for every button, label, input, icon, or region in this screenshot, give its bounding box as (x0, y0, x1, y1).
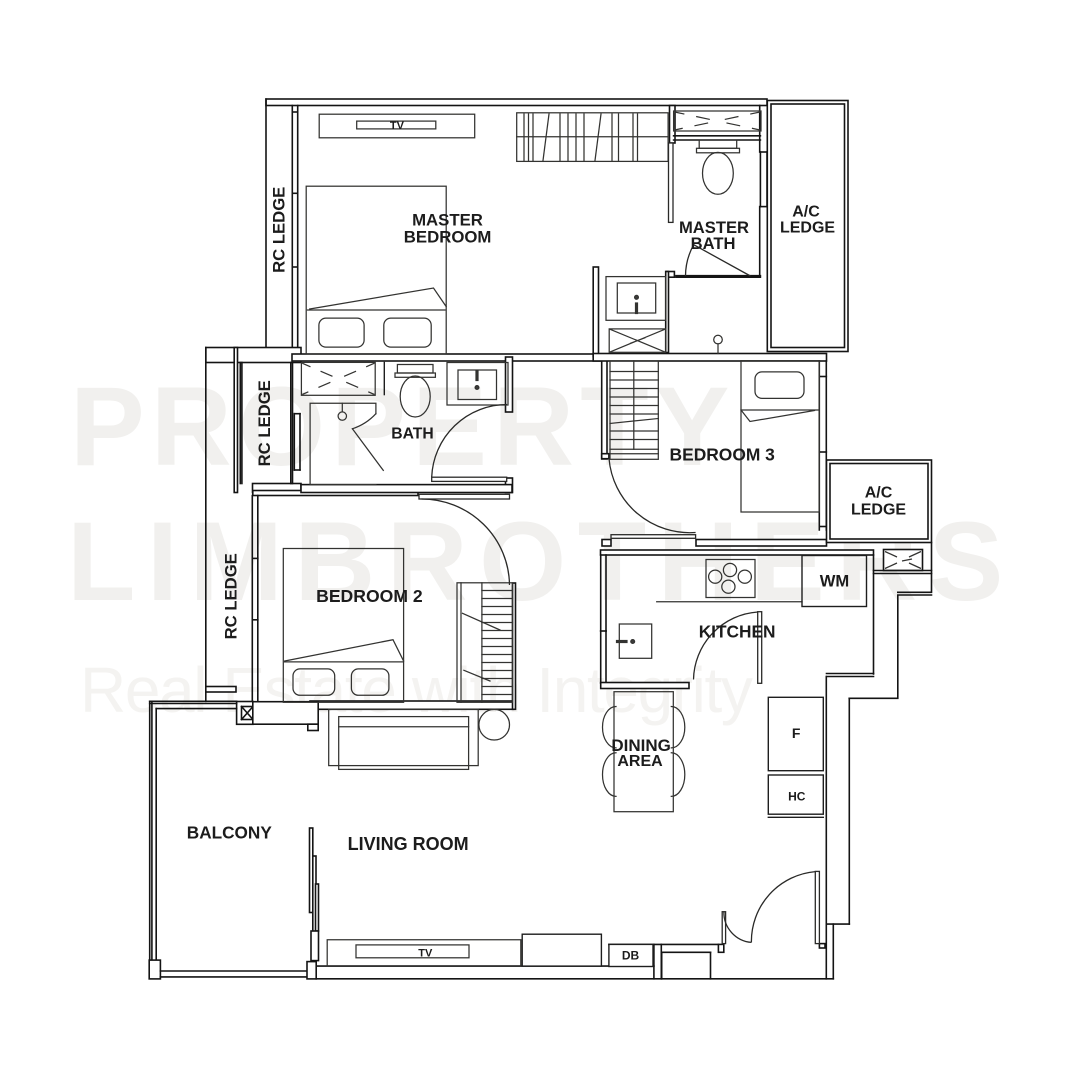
svg-text:RC LEDGE: RC LEDGE (270, 187, 289, 273)
svg-text:KITCHEN: KITCHEN (699, 621, 776, 641)
svg-text:LEDGE: LEDGE (780, 219, 835, 236)
svg-text:WM: WM (820, 571, 850, 590)
svg-text:DB: DB (622, 949, 640, 963)
svg-text:BALCONY: BALCONY (187, 823, 273, 843)
svg-text:A/C: A/C (865, 485, 893, 502)
svg-text:RC LEDGE: RC LEDGE (255, 380, 274, 466)
svg-text:BATH: BATH (391, 426, 433, 443)
svg-text:LEDGE: LEDGE (851, 502, 906, 519)
svg-text:BATH: BATH (691, 234, 736, 253)
svg-text:Real Estate with Integrity: Real Estate with Integrity (80, 654, 753, 726)
svg-text:A/C: A/C (792, 203, 820, 220)
svg-text:BEDROOM 3: BEDROOM 3 (670, 445, 776, 465)
svg-text:HC: HC (788, 790, 806, 804)
svg-text:F: F (792, 725, 801, 741)
svg-text:RC LEDGE: RC LEDGE (222, 553, 241, 639)
svg-text:TV: TV (390, 120, 405, 132)
svg-text:TV: TV (418, 948, 433, 960)
svg-text:AREA: AREA (617, 753, 663, 770)
svg-text:BEDROOM 2: BEDROOM 2 (316, 586, 423, 606)
svg-text:LIVING ROOM: LIVING ROOM (348, 834, 469, 854)
svg-text:BEDROOM: BEDROOM (404, 228, 492, 247)
